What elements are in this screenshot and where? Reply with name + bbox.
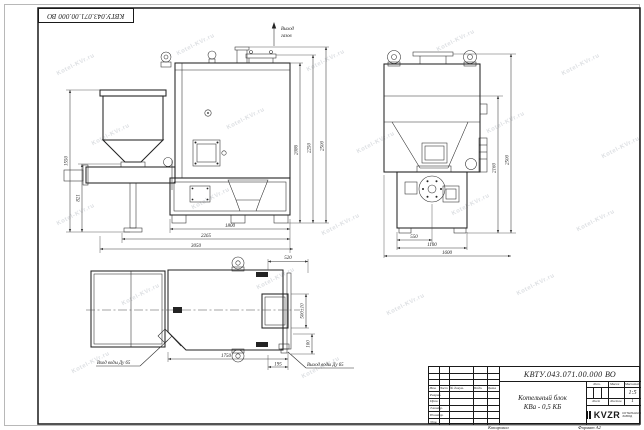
tb-part-name-line1: Котельный блок	[518, 394, 567, 403]
dim-front-total-height: 1550	[65, 156, 70, 167]
corner-stamp-number: КВТУ.043.071.00.000 ВО	[47, 12, 124, 20]
tb-row-prov: Пров.	[430, 399, 438, 403]
gas-outlet-label-2: газов	[281, 34, 292, 39]
tb-col-data: Дата	[488, 386, 496, 390]
format-label: Формат А2	[578, 425, 601, 430]
front-dims-right: 2086 2250 2500	[249, 47, 329, 223]
tb-doc-number: КВТУ.043.071.00.000 ВО	[499, 367, 641, 381]
tb-col-docnum: № докум.	[450, 386, 464, 390]
plan-view: 520 500±10 100 1750 195	[86, 256, 354, 370]
tb-scale-value: 1:5	[624, 387, 641, 398]
dim-front-w1: 1800	[225, 224, 236, 229]
dim-side-w2: 1100	[427, 243, 437, 248]
gas-outlet-label-1: Выход	[281, 27, 295, 32]
inlet-chute	[158, 329, 181, 346]
tb-row-razrab: Разраб.	[430, 393, 441, 397]
plan-lifting-lugs	[232, 257, 244, 362]
tb-sheet-label: Лист	[592, 399, 600, 403]
lifting-lug	[161, 52, 171, 67]
water-outlet-callout: Выход воды Ду 65	[288, 352, 354, 368]
dim-side-h1: 2160	[493, 163, 498, 174]
logo-bars-icon	[586, 411, 592, 419]
copied-label: Копировал	[488, 425, 509, 430]
water-outlet-label: Выход воды Ду 65	[307, 363, 344, 368]
side-dims-right: 2160 2500	[453, 54, 516, 233]
dim-side-w3: 1600	[442, 251, 453, 256]
tb-logo: KVZR КОТЕЛЬНЫЙ ЗАВОД	[586, 405, 641, 425]
drawing-sheet: Kotel-KVr.ru Kotel-KVr.ru Kotel-KVr.ru K…	[0, 0, 644, 430]
title-block: Изм. Лист № докум. Подп. Дата Разраб. Пр…	[428, 366, 640, 424]
side-fittings	[466, 104, 488, 172]
tb-col-list: Лист	[440, 386, 448, 390]
side-view: 2160 2500 550 1100 1600	[384, 51, 516, 259]
logo-subtext: КОТЕЛЬНЫЙ ЗАВОД	[622, 412, 641, 419]
tb-row-tkontr: Т.контр.	[430, 406, 443, 410]
front-dims-bottom: 1800 2265 3050	[100, 219, 293, 253]
tb-part-name-line2: КВа - 0,5 КБ	[524, 403, 562, 412]
water-inlet-label: Вход воды Ду 65	[97, 361, 131, 366]
corner-stamp: КВТУ.043.071.00.000 ВО	[38, 8, 134, 23]
tb-lit-label: Лит.	[593, 382, 601, 386]
tb-col-izm: Изм.	[430, 386, 437, 390]
front-dims-left: 1550 821	[65, 90, 131, 232]
logo-subtext-line2: ЗАВОД	[622, 415, 641, 418]
fuel-hopper	[100, 90, 166, 167]
dim-plan-opening: 500±10	[301, 303, 306, 319]
gas-outlet-flange	[246, 51, 276, 64]
dim-front-h3: 2500	[321, 141, 326, 152]
tb-col-podp: Подп.	[474, 386, 483, 390]
dim-side-h2: 2500	[506, 155, 511, 166]
tb-scale-label: Масштаб	[625, 382, 640, 386]
dim-front-w2: 2265	[201, 234, 212, 239]
front-view: Выход газов 1550 821	[64, 22, 329, 253]
dim-plan-w1: 1750	[221, 354, 232, 359]
firebox	[170, 178, 290, 223]
tb-row-nkontr: Н.контр.	[430, 413, 444, 417]
tb-part-name: Котельный блок КВа - 0,5 КБ	[499, 381, 586, 425]
dim-front-h1: 2086	[295, 145, 300, 156]
fuel-door	[193, 140, 226, 166]
tb-sheets-value: 1	[624, 398, 641, 405]
logo-text: KVZR	[594, 410, 621, 420]
gas-outlet-callout: Выход газов	[272, 22, 295, 46]
safety-valve	[208, 51, 216, 63]
dim-plan-right: 100	[307, 340, 312, 348]
tb-row-utv: Утв.	[430, 420, 437, 424]
dim-side-w1: 550	[410, 235, 418, 240]
dim-plan-w2: 195	[274, 363, 282, 368]
dim-front-w3: 3050	[191, 244, 202, 249]
tb-sheets-label: Листов	[610, 399, 621, 403]
water-outlet-stub	[279, 344, 289, 353]
dim-front-h2: 2250	[308, 143, 313, 154]
tb-mass-label: Масса	[610, 382, 619, 386]
side-dims-bottom: 550 1100 1600	[384, 175, 511, 258]
dim-plan-top: 520	[284, 256, 292, 261]
dim-front-auger-height: 821	[77, 194, 82, 202]
fan-drive	[419, 176, 445, 202]
